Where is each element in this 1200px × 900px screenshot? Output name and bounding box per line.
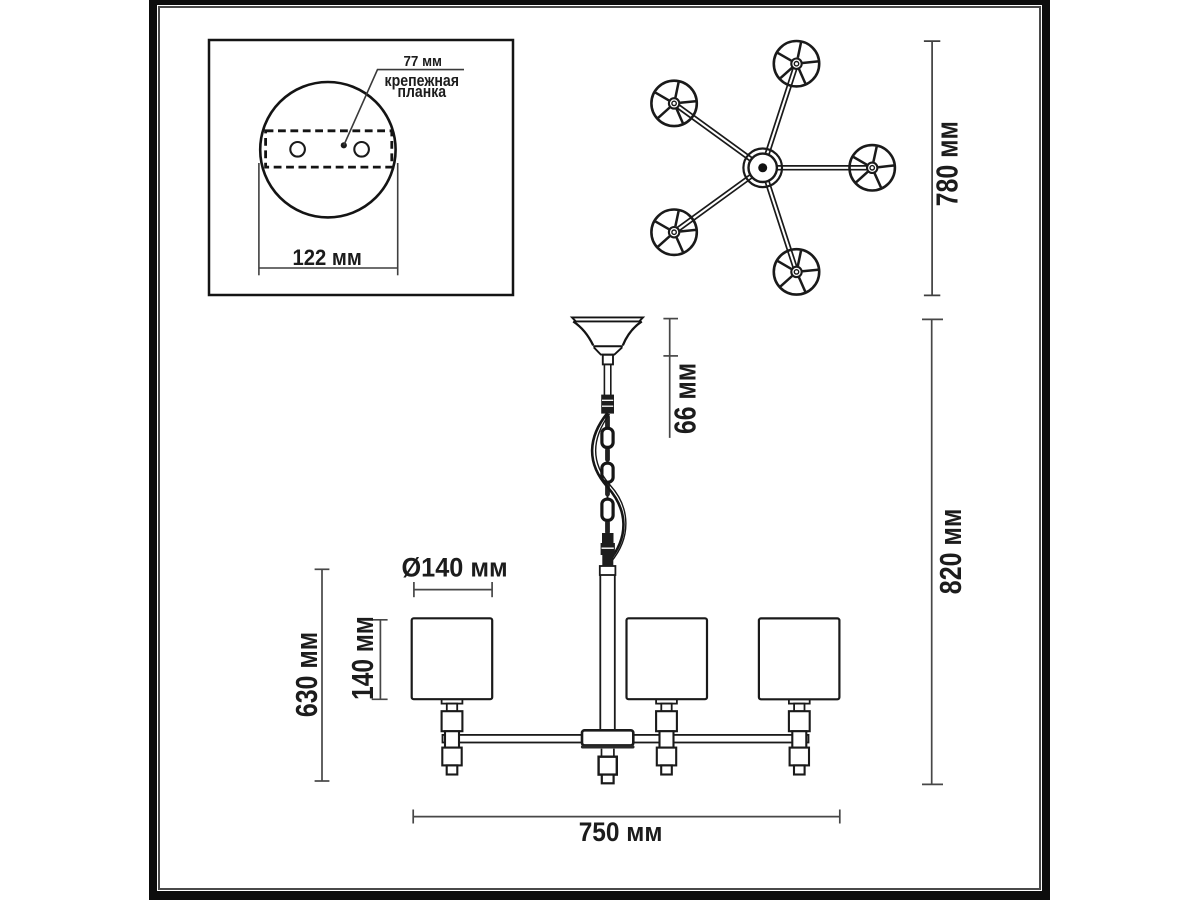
- svg-text:планка: планка: [398, 83, 447, 101]
- svg-text:122 мм: 122 мм: [293, 245, 362, 270]
- svg-text:Ø140 мм: Ø140 мм: [402, 552, 508, 582]
- svg-text:820 мм: 820 мм: [934, 509, 968, 595]
- svg-text:140 мм: 140 мм: [346, 616, 380, 700]
- svg-text:77 мм: 77 мм: [403, 54, 442, 70]
- svg-text:66 мм: 66 мм: [669, 363, 703, 434]
- svg-text:780 мм: 780 мм: [931, 121, 965, 206]
- svg-text:750 мм: 750 мм: [579, 817, 663, 847]
- svg-text:630 мм: 630 мм: [290, 632, 324, 717]
